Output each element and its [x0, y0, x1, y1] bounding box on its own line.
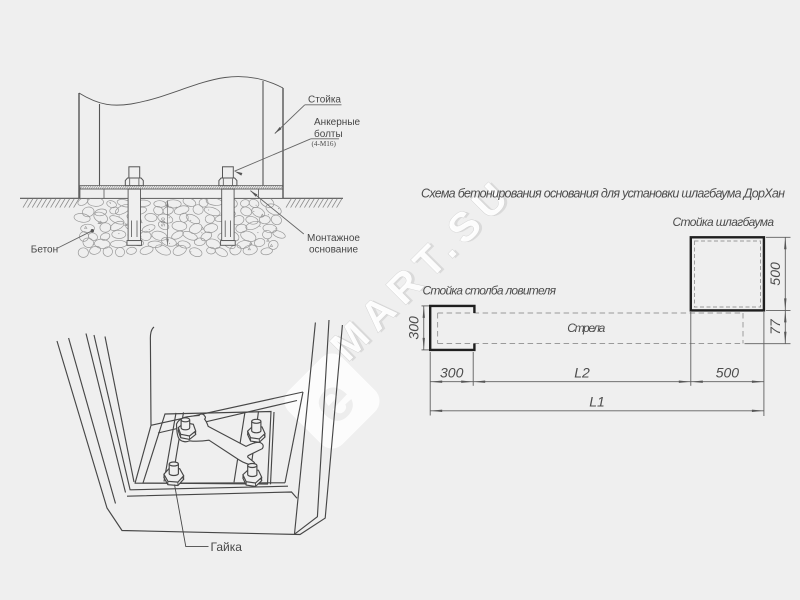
svg-text:L2: L2 — [574, 364, 590, 380]
svg-text:Монтажное: Монтажное — [307, 233, 360, 244]
svg-text:Схема бетонирования основания: Схема бетонирования основания для устано… — [421, 187, 785, 201]
svg-text:300: 300 — [406, 316, 422, 340]
svg-text:L1: L1 — [589, 394, 605, 410]
svg-text:Гайка: Гайка — [211, 540, 243, 554]
svg-text:(4-М16): (4-М16) — [312, 140, 337, 148]
svg-text:основание: основание — [309, 244, 359, 255]
svg-text:300: 300 — [440, 364, 464, 380]
svg-text:Бетон: Бетон — [31, 244, 58, 255]
svg-text:500: 500 — [161, 217, 167, 226]
svg-text:500: 500 — [716, 364, 740, 380]
svg-text:Стойка: Стойка — [308, 94, 341, 105]
svg-text:болты: болты — [314, 128, 343, 140]
svg-text:Стойка шлагбаума: Стойка шлагбаума — [673, 215, 775, 229]
svg-text:Анкерные: Анкерные — [314, 117, 361, 128]
svg-text:77: 77 — [767, 318, 783, 335]
svg-text:Стойка столба ловителя: Стойка столба ловителя — [423, 284, 557, 298]
svg-text:500: 500 — [767, 262, 783, 286]
svg-text:Стрела: Стрела — [567, 321, 605, 335]
